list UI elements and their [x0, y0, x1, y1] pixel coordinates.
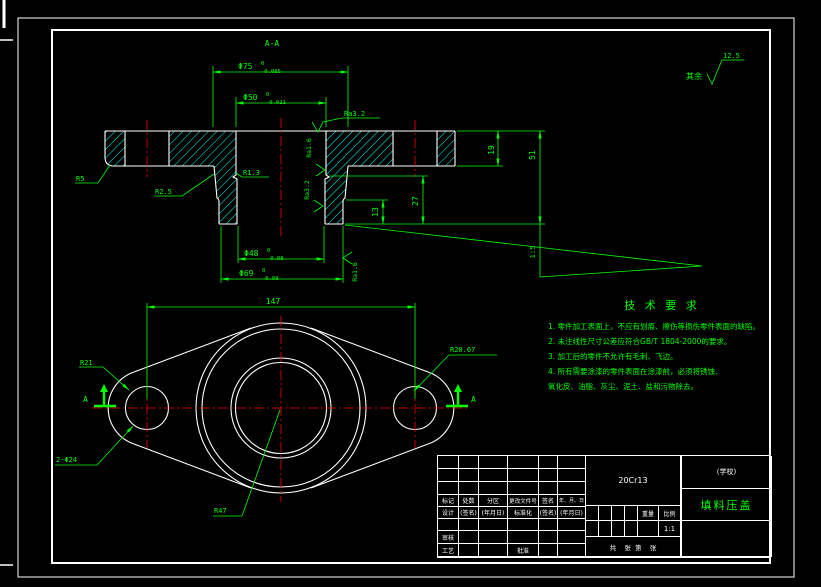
radius-r47: R47 — [214, 507, 227, 515]
section-outline — [105, 131, 455, 224]
tb-scale-label: 比例 — [659, 506, 681, 521]
dim-phi48-upper: 0 — [267, 248, 270, 254]
surface-check-icon — [707, 60, 744, 84]
title-block-revision-zone: 标记 处数 分区 更改文件号 签名 年、月、日 设计 (签名) (年月日) 标准… — [438, 456, 586, 557]
dim-19: 19 — [487, 145, 496, 155]
dim-phi75-upper: 0 — [261, 61, 264, 67]
dim-phi69-lower: -0.09 — [262, 276, 279, 282]
tb-date2: (年月日) — [558, 507, 586, 519]
tb-sign2: (签名) — [539, 507, 558, 519]
tb-date1: (年月日) — [479, 507, 508, 519]
dim-phi48: Φ48 — [244, 249, 259, 258]
dim-13: 13 — [371, 207, 380, 217]
plan-view: 147 R21 R20.67 2-Φ24 R47 A A — [55, 297, 497, 516]
tb-approve: 批准 — [508, 544, 539, 557]
tb-rev-zone: 分区 — [479, 495, 508, 507]
dim-phi50: Φ50 — [243, 93, 258, 102]
surface-note: 其余 12.5 — [686, 52, 744, 84]
dim-147: 147 — [266, 297, 281, 306]
plan-dimensions — [55, 303, 497, 516]
roughness-bore-upper: Ra1.6 — [305, 138, 313, 158]
tb-rev-count: 处数 — [459, 495, 479, 507]
dim-phi69: Φ69 — [239, 269, 254, 278]
cutting-arrow-left — [100, 384, 108, 392]
tb-scale-value: 1:1 — [659, 521, 681, 537]
surface-symbol-outer — [343, 252, 352, 264]
hatch-left-wall — [169, 131, 237, 224]
tb-design: 设计 — [438, 507, 459, 519]
title-block-name-zone: (学校) 填料压盖 — [681, 456, 771, 557]
surface-symbol-bore-upper — [316, 164, 325, 176]
roughness-top: Ra3.2 — [344, 110, 365, 118]
holes-note: 2-Φ24 — [56, 456, 77, 464]
tb-rev-sign: 签名 — [539, 495, 558, 507]
hatch-right-ear — [437, 131, 455, 166]
tb-rev-mark: 标记 — [438, 495, 459, 507]
tb-rev-file: 更改文件号 — [508, 495, 539, 507]
section-view: A-A Φ75 0 -0.085 Φ50 0 -0.021 Φ48 0 -0.0… — [75, 39, 702, 283]
surface-symbol-top — [312, 118, 380, 132]
dim-phi75: Φ75 — [238, 62, 253, 71]
roughness-bore-lower: Ra3.2 — [303, 180, 311, 200]
roughness-outer: Ra1.6 — [351, 262, 359, 282]
dim-51: 51 — [528, 150, 537, 160]
tech-req-line: 氧化皮、油脂、灰尘、泥土、盐和污物除去。 — [548, 379, 776, 394]
tech-req-line: 2. 未注线性尺寸公差应符合GB/T 1804-2000的要求。 — [548, 334, 776, 349]
dim-phi69-upper: 0 — [262, 268, 265, 274]
tb-organization: (学校) — [682, 456, 772, 489]
radius-r5: R5 — [76, 175, 84, 183]
dim-phi75-lower: -0.085 — [261, 69, 281, 75]
dim-phi50-lower: -0.021 — [266, 100, 286, 106]
tb-rev-date: 年、月、日 — [558, 495, 586, 507]
taper-note: 1:5 — [529, 246, 537, 259]
surface-symbol-bore-lower — [314, 200, 323, 212]
tb-sign1: (签名) — [459, 507, 479, 519]
tb-weight-label: 重量 — [638, 506, 659, 521]
tech-req-line: 1. 零件加工表面上，不应有划痕、擦伤等损伤零件表面的缺陷。 — [548, 319, 776, 334]
dim-phi50-upper: 0 — [266, 92, 269, 98]
surface-note-prefix: 其余 — [686, 71, 702, 81]
tb-standardize: 标准化 — [508, 507, 539, 519]
surface-note-value: 12.5 — [723, 52, 740, 60]
cutting-plane-left — [94, 391, 116, 406]
tb-check: 审核 — [438, 531, 459, 544]
technical-requirements: 技 术 要 求 1. 零件加工表面上，不应有划痕、擦伤等损伤零件表面的缺陷。 2… — [548, 297, 776, 394]
section-dimensions — [75, 66, 702, 283]
title-block-middle-zone: 20Cr13 重量 比例 1:1 共 张 第 张 — [586, 456, 681, 557]
cutting-arrow-right — [454, 384, 462, 392]
radius-r20-67: R20.67 — [450, 346, 475, 354]
section-mark-a-left: A — [83, 395, 88, 404]
radius-r1-3: R1.3 — [243, 169, 260, 177]
dim-phi48-lower: -0.08 — [267, 256, 284, 262]
tb-sheet: 共 张 第 张 — [586, 537, 681, 557]
cad-drawing-screen: A-A Φ75 0 -0.085 Φ50 0 -0.021 Φ48 0 -0.0… — [0, 0, 821, 587]
cutting-plane-right — [446, 391, 468, 406]
tech-req-line: 4. 所有需要涂漆的零件表面在涂漆前，必须将锈蚀、 — [548, 364, 776, 379]
title-block: 标记 处数 分区 更改文件号 签名 年、月、日 设计 (签名) (年月日) 标准… — [437, 455, 770, 558]
hatch-left-ear — [105, 131, 125, 166]
plan-centerlines — [92, 316, 470, 502]
tech-req-title: 技 术 要 求 — [548, 297, 776, 313]
tb-part-name: 填料压盖 — [682, 489, 772, 521]
radius-r21: R21 — [80, 359, 93, 367]
tech-req-line: 3. 加工后的零件不允许有毛刺、飞边。 — [548, 349, 776, 364]
radius-r2-5: R2.5 — [155, 188, 172, 196]
dim-27: 27 — [411, 196, 420, 206]
tb-process: 工艺 — [438, 544, 459, 557]
section-mark-a-right: A — [471, 395, 476, 404]
tb-material: 20Cr13 — [586, 456, 681, 506]
section-label: A-A — [265, 39, 280, 48]
